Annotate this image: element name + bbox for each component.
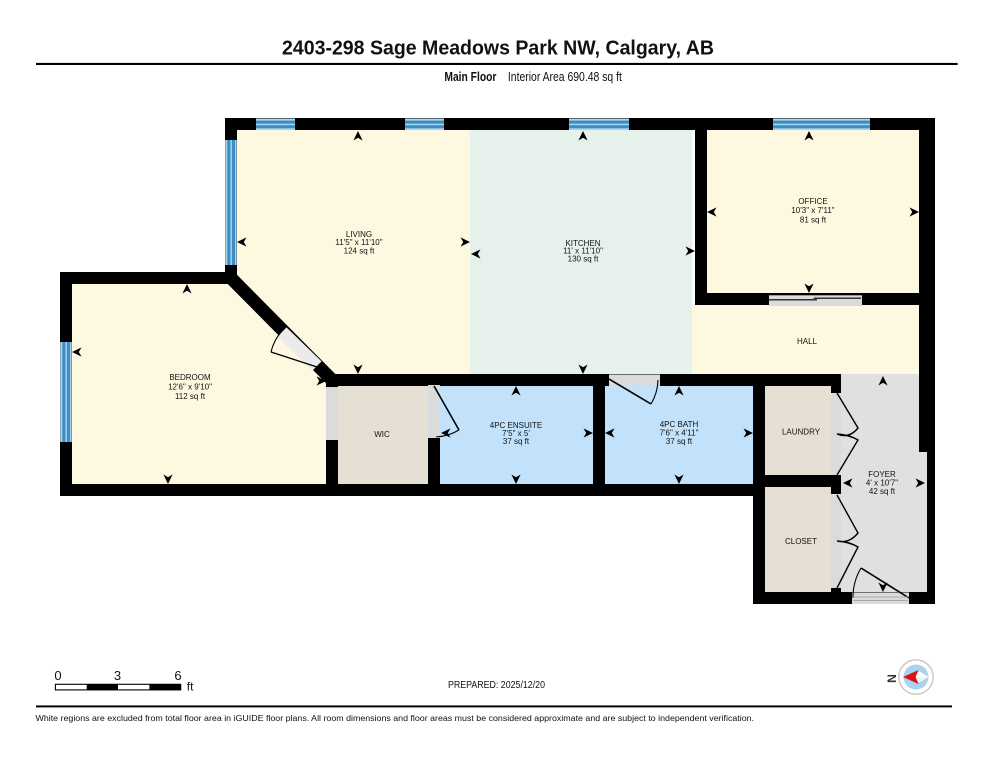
svg-text:124 sq ft: 124 sq ft xyxy=(344,246,375,255)
svg-text:3: 3 xyxy=(114,668,121,683)
svg-text:37 sq ft: 37 sq ft xyxy=(503,437,530,446)
svg-text:112 sq ft: 112 sq ft xyxy=(175,392,206,401)
svg-text:81 sq ft: 81 sq ft xyxy=(800,215,827,224)
svg-text:ft: ft xyxy=(187,680,194,694)
svg-text:BEDROOM: BEDROOM xyxy=(169,373,211,382)
svg-text:10'3" x 7'11": 10'3" x 7'11" xyxy=(791,206,834,215)
svg-text:2403-298 Sage Meadows Park NW,: 2403-298 Sage Meadows Park NW, Calgary, … xyxy=(282,37,714,60)
svg-text:HALL: HALL xyxy=(797,337,818,346)
svg-text:37 sq ft: 37 sq ft xyxy=(666,437,693,446)
svg-text:Main Floor: Main Floor xyxy=(444,69,496,84)
svg-text:White regions are excluded fro: White regions are excluded from total fl… xyxy=(36,714,755,723)
svg-text:42 sq ft: 42 sq ft xyxy=(869,487,896,496)
svg-text:6: 6 xyxy=(174,668,181,683)
svg-text:PREPARED: 2025/12/20: PREPARED: 2025/12/20 xyxy=(448,680,545,691)
svg-text:WIC: WIC xyxy=(374,430,390,439)
svg-text:N: N xyxy=(885,674,899,683)
svg-text:130 sq ft: 130 sq ft xyxy=(568,254,599,263)
svg-text:0: 0 xyxy=(54,668,61,683)
svg-text:Interior Area 690.48 sq ft: Interior Area 690.48 sq ft xyxy=(508,69,622,84)
svg-text:LAUNDRY: LAUNDRY xyxy=(782,428,821,437)
svg-text:12'6" x 9'10": 12'6" x 9'10" xyxy=(168,382,212,391)
svg-text:OFFICE: OFFICE xyxy=(798,197,827,206)
svg-text:CLOSET: CLOSET xyxy=(785,537,817,546)
